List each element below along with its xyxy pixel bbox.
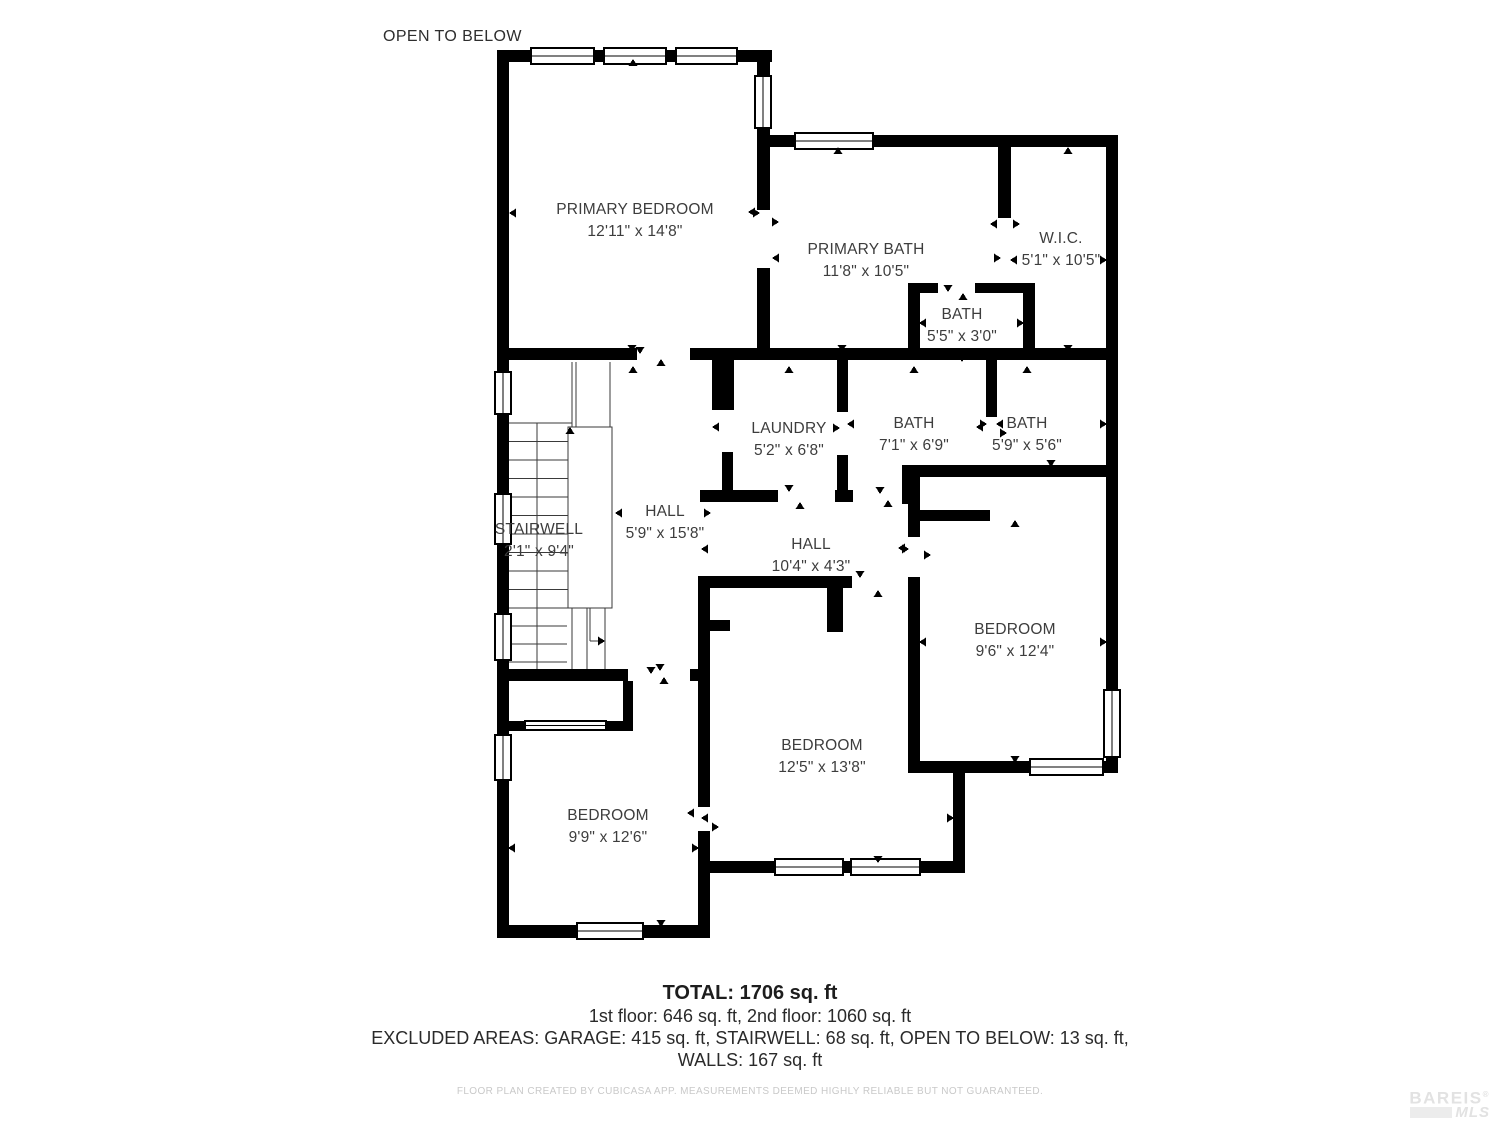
room-name: STAIRWELL	[495, 519, 583, 541]
room-dims: 7'1" x 6'9"	[879, 435, 949, 457]
room-label-hall-vertical: HALL 5'9" x 15'8"	[626, 501, 705, 545]
marker-triangle	[785, 366, 794, 373]
room-name: BATH	[879, 413, 949, 435]
room-name: HALL	[626, 501, 705, 523]
marker-triangle	[647, 667, 656, 674]
wall-segment	[698, 576, 710, 807]
room-dims: 5'2" x 6'8"	[751, 440, 826, 462]
window-icon	[495, 735, 511, 780]
wall-segment	[908, 577, 920, 773]
room-label-hall-horizontal: HALL 10'4" x 4'3"	[772, 534, 851, 578]
marker-triangle	[874, 590, 883, 597]
wall-segment	[509, 721, 525, 731]
marker-triangle	[1017, 319, 1024, 328]
wall-segment	[908, 283, 938, 293]
room-name: PRIMARY BATH	[808, 239, 925, 261]
marker-triangle	[1011, 520, 1020, 527]
wall-segment	[835, 490, 853, 502]
room-name: HALL	[772, 534, 851, 556]
marker-triangle	[919, 638, 926, 647]
wall-segment	[700, 490, 778, 502]
room-dims: 5'9" x 5'6"	[992, 435, 1062, 457]
bareis-mls-logo: BAREIS® MLS	[1409, 1087, 1490, 1119]
wall-segment	[827, 576, 843, 632]
marker-triangle	[910, 366, 919, 373]
marker-triangle	[772, 254, 779, 263]
marker-triangle	[1100, 638, 1107, 647]
wall-segment	[757, 50, 770, 210]
marker-triangle	[785, 485, 794, 492]
marker-triangle	[692, 844, 699, 853]
marker-triangle	[898, 544, 905, 553]
marker-triangle	[796, 502, 805, 509]
room-name: LAUNDRY	[751, 418, 826, 440]
wall-segment	[509, 669, 628, 681]
marker-triangle	[1100, 256, 1107, 265]
marker-triangle	[976, 423, 983, 432]
marker-triangle	[1010, 256, 1017, 265]
room-dims: 5'1" x 10'5"	[1022, 250, 1101, 272]
open-to-below-label: OPEN TO BELOW	[383, 28, 522, 46]
window-icon	[604, 48, 666, 64]
window-icon	[676, 48, 737, 64]
disclaimer-text: FLOOR PLAN CREATED BY CUBICASA APP. MEAS…	[0, 1086, 1500, 1097]
stairwell-treads	[509, 362, 612, 669]
marker-triangle	[656, 664, 665, 671]
room-label-bath-right: BATH 5'9" x 5'6"	[992, 413, 1062, 457]
wall-segment	[1106, 135, 1118, 773]
marker-triangle	[704, 509, 711, 518]
marker-triangle	[712, 823, 719, 832]
room-dims: 5'9" x 15'8"	[626, 523, 705, 545]
marker-triangle	[509, 209, 516, 218]
room-dims: 11'8" x 10'5"	[808, 261, 925, 283]
room-name: BEDROOM	[778, 735, 866, 757]
room-label-bath-small: BATH 5'5" x 3'0"	[927, 304, 997, 348]
window-icon	[1030, 759, 1103, 775]
wall-segment	[690, 669, 710, 681]
window-icon	[525, 721, 606, 730]
marker-triangle	[1023, 366, 1032, 373]
wall-segment	[998, 147, 1011, 218]
summary-excluded: EXCLUDED AREAS: GARAGE: 415 sq. ft, STAI…	[0, 1027, 1500, 1049]
room-dims: 12'11" x 14'8"	[556, 221, 713, 243]
wall-segment	[497, 348, 637, 360]
room-label-bedroom-center: BEDROOM 12'5" x 13'8"	[778, 735, 866, 779]
wall-segment	[690, 348, 1118, 360]
room-name: BEDROOM	[567, 805, 649, 827]
wall-segment	[698, 831, 710, 938]
wall-segment	[837, 455, 848, 492]
room-label-laundry: LAUNDRY 5'2" x 6'8"	[751, 418, 826, 462]
window-icon	[1104, 690, 1120, 757]
window-icon	[531, 48, 594, 64]
logo-bar	[1410, 1107, 1452, 1118]
logo-line2: MLS	[1409, 1106, 1490, 1119]
window-icon	[577, 923, 643, 939]
stair-walk-line	[568, 427, 612, 608]
marker-triangle	[687, 809, 694, 818]
marker-triangle	[508, 844, 515, 853]
summary-total: TOTAL: 1706 sq. ft	[0, 982, 1500, 1005]
window-icon	[795, 133, 873, 149]
area-summary: TOTAL: 1706 sq. ft 1st floor: 646 sq. ft…	[0, 982, 1500, 1071]
wall-segment	[712, 360, 734, 410]
marker-triangle	[833, 424, 840, 433]
marker-triangle	[712, 423, 719, 432]
room-label-primary-bedroom: PRIMARY BEDROOM 12'11" x 14'8"	[556, 199, 713, 243]
room-name: BATH	[927, 304, 997, 326]
marker-triangle	[615, 509, 622, 518]
room-label-bedroom-right: BEDROOM 9'6" x 12'4"	[974, 619, 1056, 663]
marker-triangle	[1064, 147, 1073, 154]
wall-segment	[722, 452, 733, 492]
wall-segment	[908, 465, 1118, 477]
room-dims: 2'1" x 9'4"	[495, 541, 583, 563]
wall-segment	[837, 360, 848, 412]
logo-registered: ®	[1483, 1090, 1490, 1099]
marker-triangle	[924, 551, 931, 560]
room-label-bath-center: BATH 7'1" x 6'9"	[879, 413, 949, 457]
marker-triangle	[1100, 420, 1107, 429]
logo-mls: MLS	[1455, 1106, 1490, 1119]
window-icon	[495, 614, 511, 660]
marker-triangle	[994, 254, 1001, 263]
room-label-primary-bath: PRIMARY BATH 11'8" x 10'5"	[808, 239, 925, 283]
room-dims: 10'4" x 4'3"	[772, 556, 851, 578]
window-icon	[755, 76, 771, 128]
marker-triangle	[660, 677, 669, 684]
marker-triangle	[629, 366, 638, 373]
room-label-stairwell: STAIRWELL 2'1" x 9'4"	[495, 519, 583, 563]
room-name: BEDROOM	[974, 619, 1056, 641]
room-name: W.I.C.	[1022, 228, 1101, 250]
window-icon	[775, 859, 843, 875]
marker-triangle	[884, 500, 893, 507]
wall-segment	[606, 721, 632, 731]
room-dims: 12'5" x 13'8"	[778, 757, 866, 779]
marker-triangle	[959, 293, 968, 300]
marker-triangle	[990, 220, 997, 229]
marker-triangle	[856, 571, 865, 578]
wall-segment	[986, 360, 997, 417]
wall-segment	[953, 761, 965, 873]
room-label-wic: W.I.C. 5'1" x 10'5"	[1022, 228, 1101, 272]
marker-triangle	[919, 319, 926, 328]
wall-segment	[908, 283, 920, 360]
room-dims: 9'6" x 12'4"	[974, 641, 1056, 663]
summary-walls: WALLS: 167 sq. ft	[0, 1049, 1500, 1071]
marker-triangle	[944, 285, 953, 292]
room-dims: 5'5" x 3'0"	[927, 326, 997, 348]
stair-down-arrow	[598, 637, 605, 646]
room-dims: 9'9" x 12'6"	[567, 827, 649, 849]
window-icon	[851, 859, 920, 875]
marker-triangle	[748, 208, 755, 217]
marker-triangle	[772, 218, 779, 227]
marker-triangle	[947, 814, 954, 823]
marker-triangle	[847, 420, 854, 429]
marker-triangle	[876, 487, 885, 494]
room-name: BATH	[992, 413, 1062, 435]
wall-segment	[757, 268, 770, 360]
marker-triangle	[701, 545, 708, 554]
marker-triangle	[657, 359, 666, 366]
marker-triangle	[1013, 220, 1020, 229]
room-label-bedroom-left: BEDROOM 9'9" x 12'6"	[567, 805, 649, 849]
floorplan-page: OPEN TO BELOW PRIMARY BEDROOM 12'11" x 1…	[0, 0, 1500, 1125]
wall-segment	[920, 510, 990, 521]
floorplan-drawing	[0, 0, 1500, 1125]
window-icon	[495, 372, 511, 414]
room-name: PRIMARY BEDROOM	[556, 199, 713, 221]
summary-floors: 1st floor: 646 sq. ft, 2nd floor: 1060 s…	[0, 1005, 1500, 1027]
marker-triangle	[701, 814, 708, 823]
wall-segment	[1023, 283, 1035, 360]
